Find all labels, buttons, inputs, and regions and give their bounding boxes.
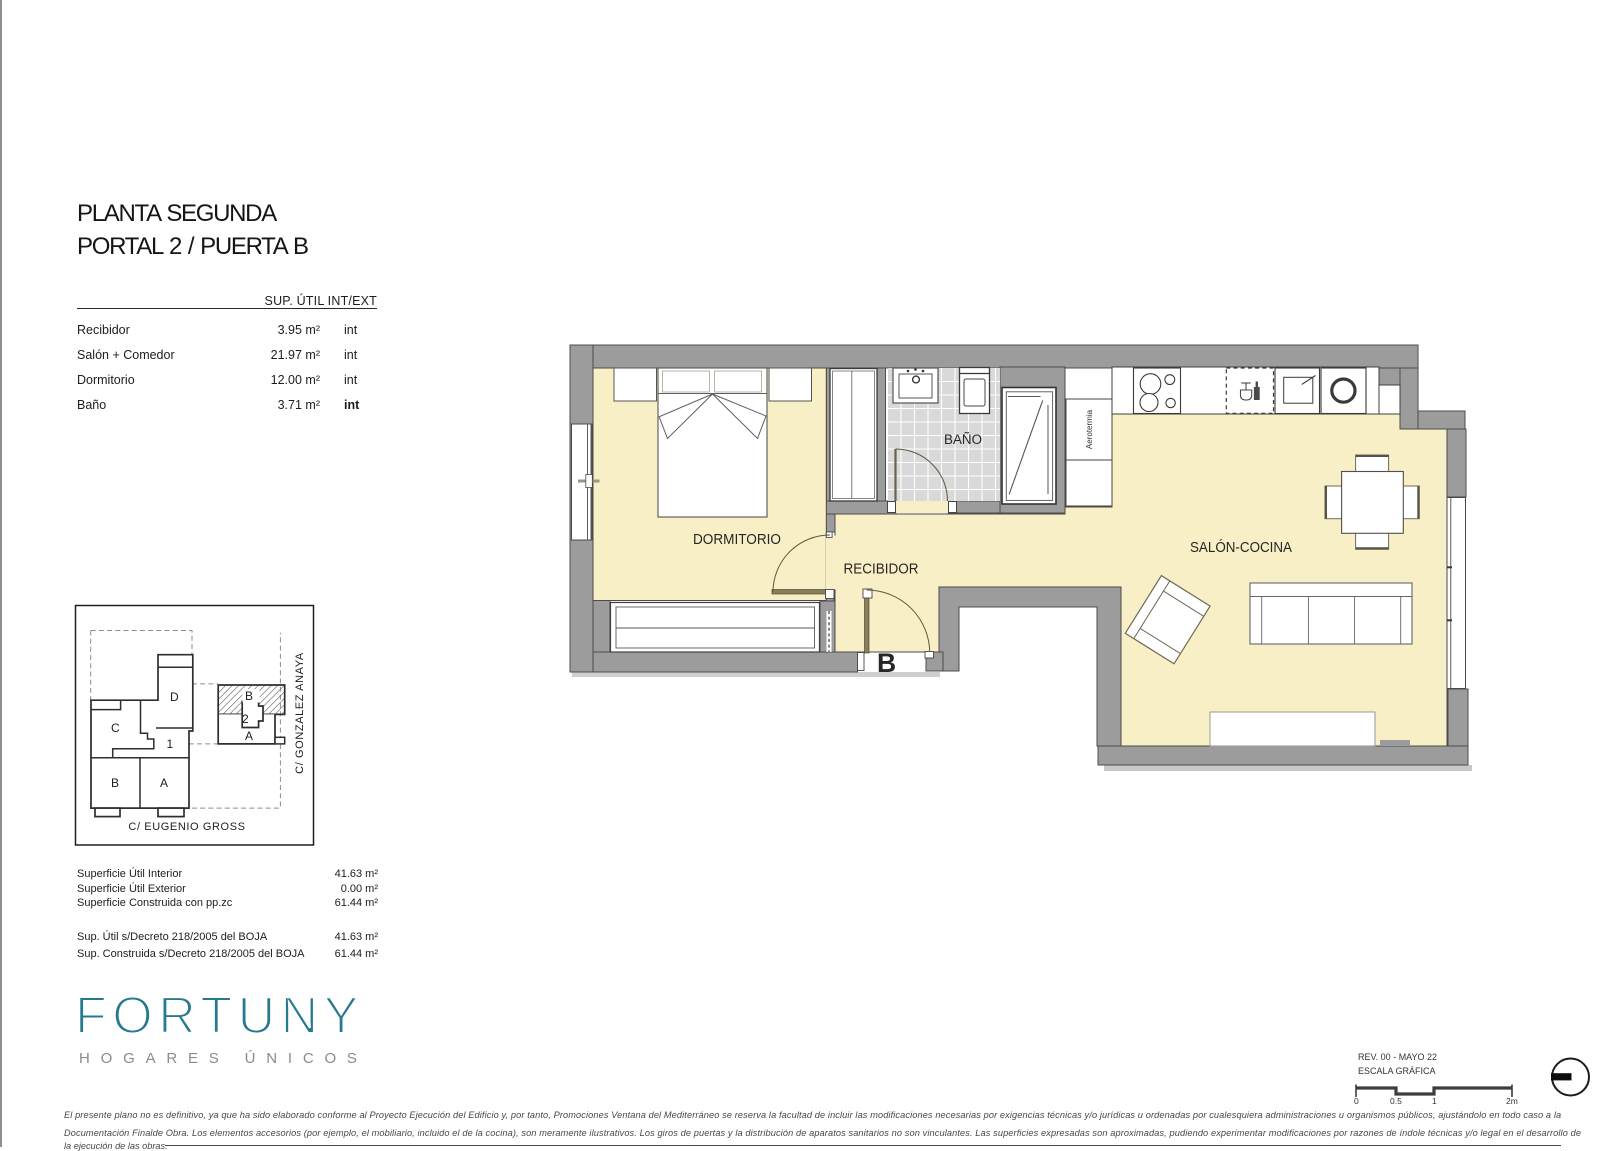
svg-text:C/ EUGENIO GROSS: C/ EUGENIO GROSS bbox=[128, 821, 245, 833]
svg-text:B: B bbox=[245, 689, 253, 703]
svg-text:2m: 2m bbox=[1506, 1096, 1518, 1106]
svg-text:SALÓN-COCINA: SALÓN-COCINA bbox=[1190, 539, 1292, 556]
svg-text:1: 1 bbox=[167, 737, 174, 751]
svg-text:Aerotermia: Aerotermia bbox=[1085, 409, 1094, 449]
svg-text:D: D bbox=[170, 690, 179, 704]
svg-text:B: B bbox=[877, 648, 896, 678]
svg-text:C/ GONZALEZ ANAYA: C/ GONZALEZ ANAYA bbox=[294, 652, 306, 774]
svg-text:DORMITORIO: DORMITORIO bbox=[693, 531, 781, 548]
svg-text:A: A bbox=[160, 776, 168, 790]
svg-text:B: B bbox=[111, 776, 119, 790]
svg-text:2: 2 bbox=[242, 712, 249, 726]
svg-text:C: C bbox=[111, 721, 120, 735]
svg-text:0: 0 bbox=[1354, 1096, 1359, 1106]
svg-text:BAÑO: BAÑO bbox=[944, 432, 982, 447]
svg-text:A: A bbox=[245, 729, 253, 743]
svg-text:0.5: 0.5 bbox=[1390, 1096, 1402, 1106]
svg-text:1: 1 bbox=[1432, 1096, 1437, 1106]
svg-text:RECIBIDOR: RECIBIDOR bbox=[844, 561, 919, 578]
